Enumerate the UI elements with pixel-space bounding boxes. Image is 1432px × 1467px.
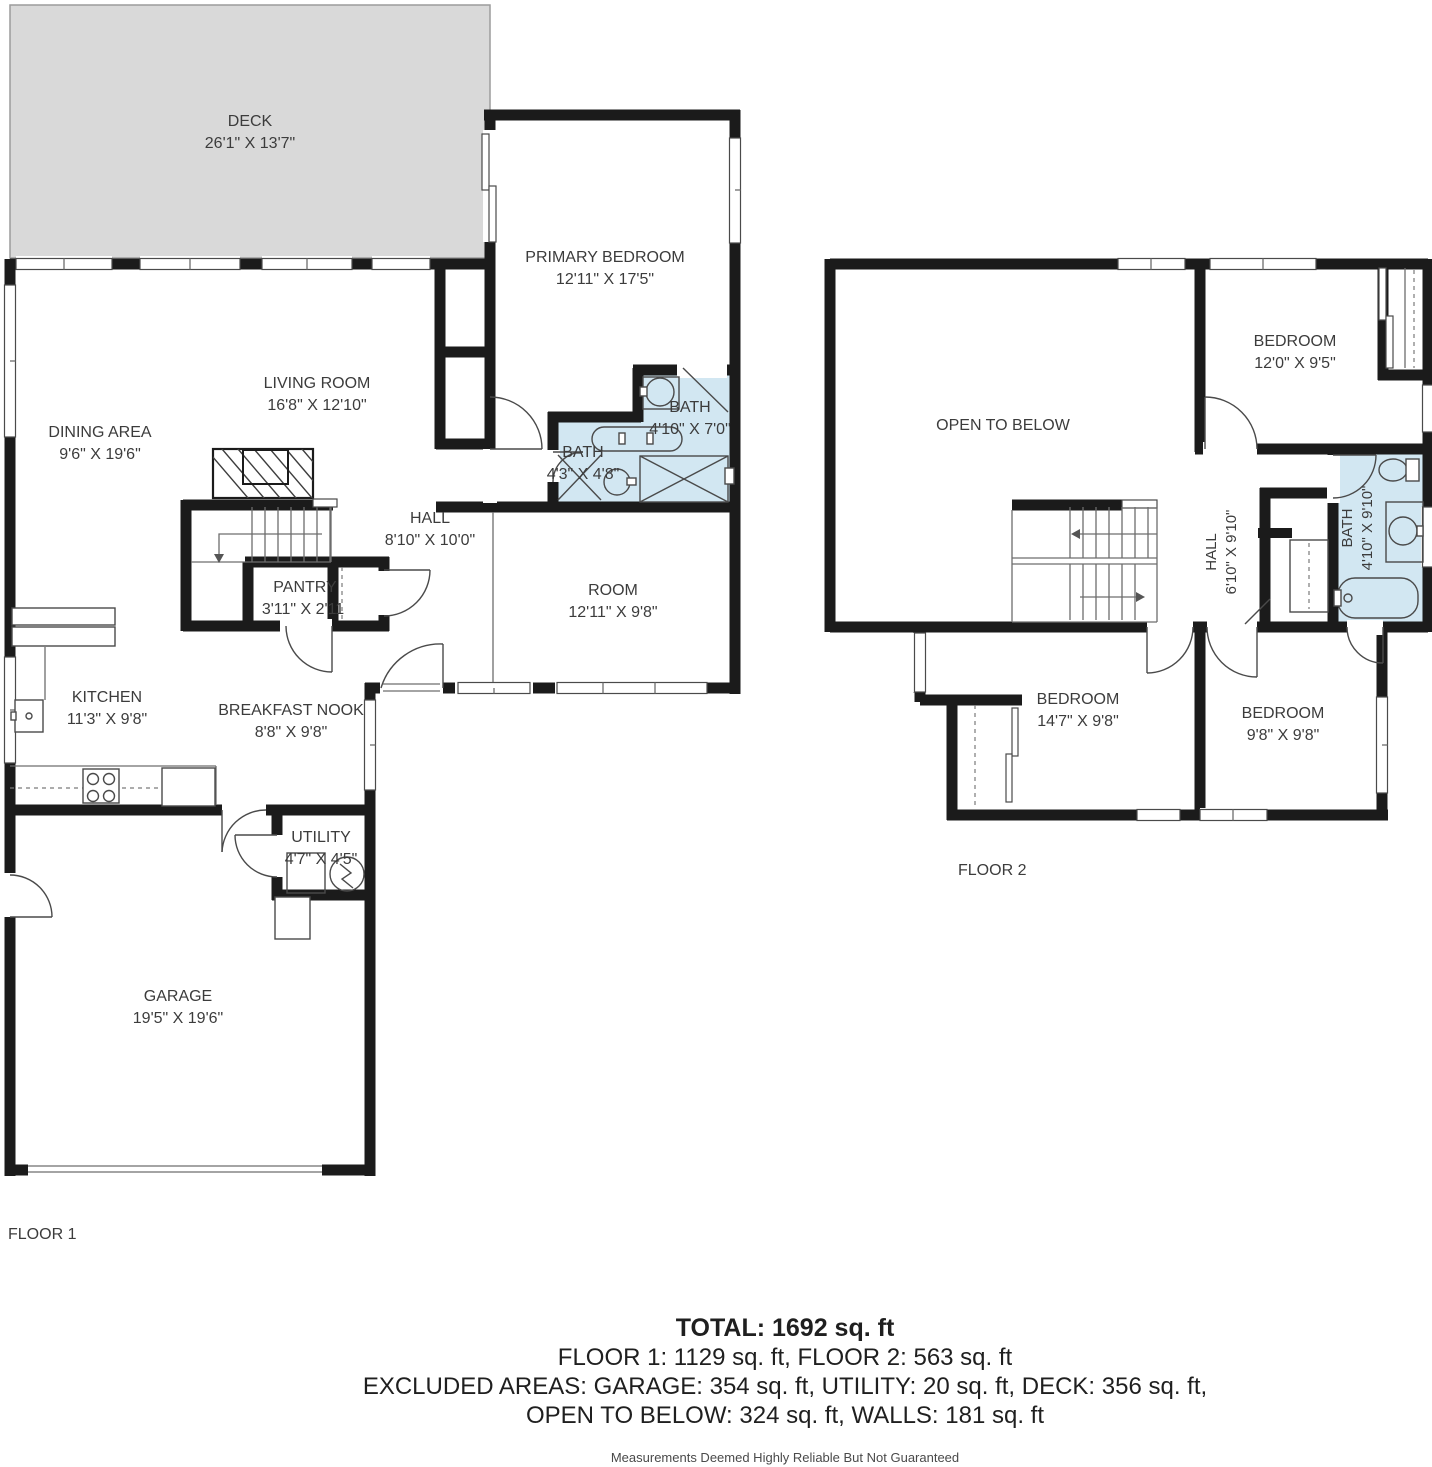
- hall-label: HALL: [410, 510, 450, 527]
- living-room-dims: 16'8" X 12'10": [267, 397, 366, 414]
- living-room-label: LIVING ROOM: [264, 375, 371, 392]
- hall-dims: 8'10" X 10'0": [385, 532, 475, 549]
- breakfast-nook-dims: 8'8" X 9'8": [255, 724, 328, 741]
- floor1-title: FLOOR 1: [8, 1226, 77, 1243]
- utility-dims: 4'7" X 4'5": [285, 851, 358, 868]
- excluded-areas-line2: OPEN TO BELOW: 324 sq. ft, WALLS: 181 sq…: [140, 1401, 1430, 1430]
- area-summary: TOTAL: 1692 sq. ft FLOOR 1: 1129 sq. ft,…: [140, 1313, 1430, 1430]
- floor1-plan: DECK 26'1" X 13'7" PRIMARY BEDROOM 12'11…: [2, 5, 925, 1243]
- bath3-label: BATH: [1339, 509, 1356, 548]
- disclaimer: Measurements Deemed Highly Reliable But …: [140, 1450, 1430, 1465]
- total-area: TOTAL: 1692 sq. ft: [140, 1313, 1430, 1343]
- bedroom-br-label: BEDROOM: [1242, 705, 1325, 722]
- bath2-label: BATH: [562, 444, 603, 461]
- room-label: ROOM: [588, 582, 638, 599]
- breakfast-nook-label: BREAKFAST NOOK: [218, 702, 364, 719]
- bath1-label: BATH: [669, 399, 710, 416]
- garage-dims: 19'5" X 19'6": [133, 1010, 223, 1027]
- hall2-dims: 6'10" X 9'10": [1223, 510, 1240, 595]
- floorplan-drawing: DECK 26'1" X 13'7" PRIMARY BEDROOM 12'11…: [0, 0, 1432, 1262]
- deck-area: [10, 5, 490, 258]
- bath1-dims: 4'10" X 7'0": [649, 421, 731, 438]
- pantry-label: PANTRY: [273, 579, 337, 596]
- dining-area-dims: 9'6" X 19'6": [59, 446, 141, 463]
- floor2-title: FLOOR 2: [958, 862, 1027, 879]
- bath2-dims: 4'3" X 4'8": [547, 466, 620, 483]
- kitchen-label: KITCHEN: [72, 689, 142, 706]
- deck-dims: 26'1" X 13'7": [205, 135, 295, 152]
- excluded-areas-line1: EXCLUDED AREAS: GARAGE: 354 sq. ft, UTIL…: [140, 1372, 1430, 1401]
- kitchen-fixtures: [10, 608, 216, 806]
- stairs-floor2: [1012, 505, 1157, 622]
- deck-label: DECK: [228, 113, 273, 130]
- bath3-dims: 4'10" X 9'10": [1359, 486, 1376, 571]
- primary-bedroom-label: PRIMARY BEDROOM: [525, 249, 684, 266]
- pantry-dims: 3'11" X 2'11: [262, 601, 344, 618]
- open-to-below-label: OPEN TO BELOW: [936, 417, 1071, 434]
- bedroom-bl-label: BEDROOM: [1037, 691, 1120, 708]
- bedroom-bl-dims: 14'7" X 9'8": [1037, 713, 1119, 730]
- bedroom-tr-label: BEDROOM: [1254, 333, 1337, 350]
- bedroom-br-dims: 9'8" X 9'8": [1247, 727, 1320, 744]
- dining-area-label: DINING AREA: [48, 424, 151, 441]
- floor-areas: FLOOR 1: 1129 sq. ft, FLOOR 2: 563 sq. f…: [140, 1343, 1430, 1372]
- bedroom-tr-dims: 12'0" X 9'5": [1254, 355, 1336, 372]
- floor2-plan: OPEN TO BELOW BEDROOM 12'0" X 9'5" HALL …: [830, 256, 1432, 879]
- floor2-labels: OPEN TO BELOW BEDROOM 12'0" X 9'5" HALL …: [936, 333, 1376, 879]
- utility-label: UTILITY: [291, 829, 351, 846]
- kitchen-dims: 11'3" X 9'8": [67, 711, 147, 728]
- linen-wall-stub: [1258, 528, 1292, 538]
- primary-bedroom-dims: 12'11" X 17'5": [556, 271, 654, 288]
- room-dims: 12'11" X 9'8": [568, 604, 657, 621]
- hall2-label: HALL: [1203, 533, 1220, 571]
- garage-label: GARAGE: [144, 988, 212, 1005]
- floorplan-page: DECK 26'1" X 13'7" PRIMARY BEDROOM 12'11…: [0, 0, 1432, 1467]
